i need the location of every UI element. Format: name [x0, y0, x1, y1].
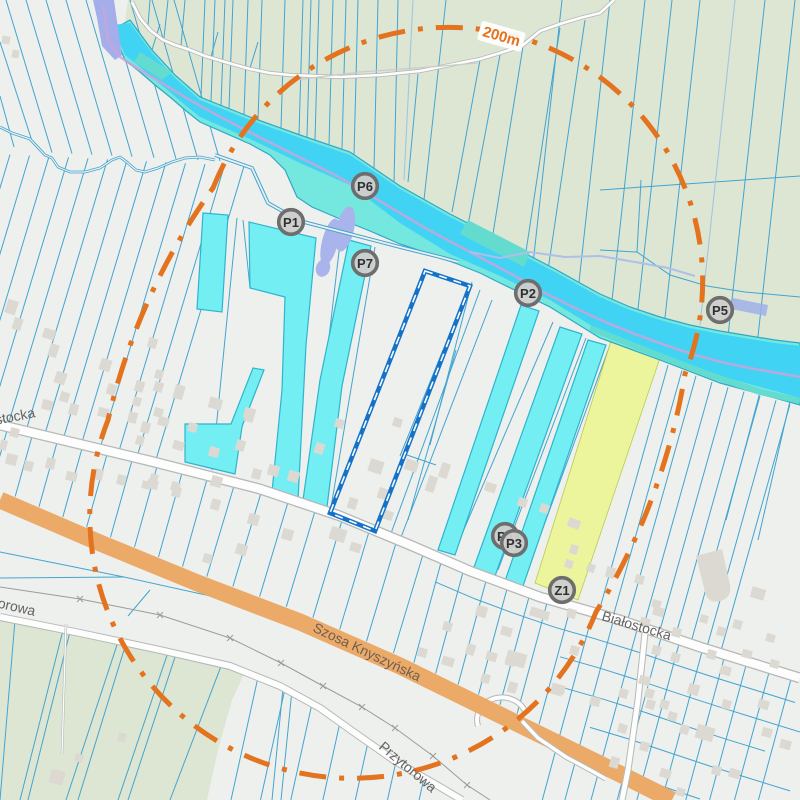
svg-text:Z1: Z1: [554, 583, 569, 598]
svg-text:P6: P6: [357, 179, 373, 194]
svg-text:P7: P7: [357, 256, 373, 271]
svg-text:P1: P1: [283, 215, 299, 230]
svg-text:P5: P5: [712, 303, 728, 318]
svg-text:P2: P2: [520, 286, 536, 301]
svg-text:P3: P3: [506, 536, 522, 551]
